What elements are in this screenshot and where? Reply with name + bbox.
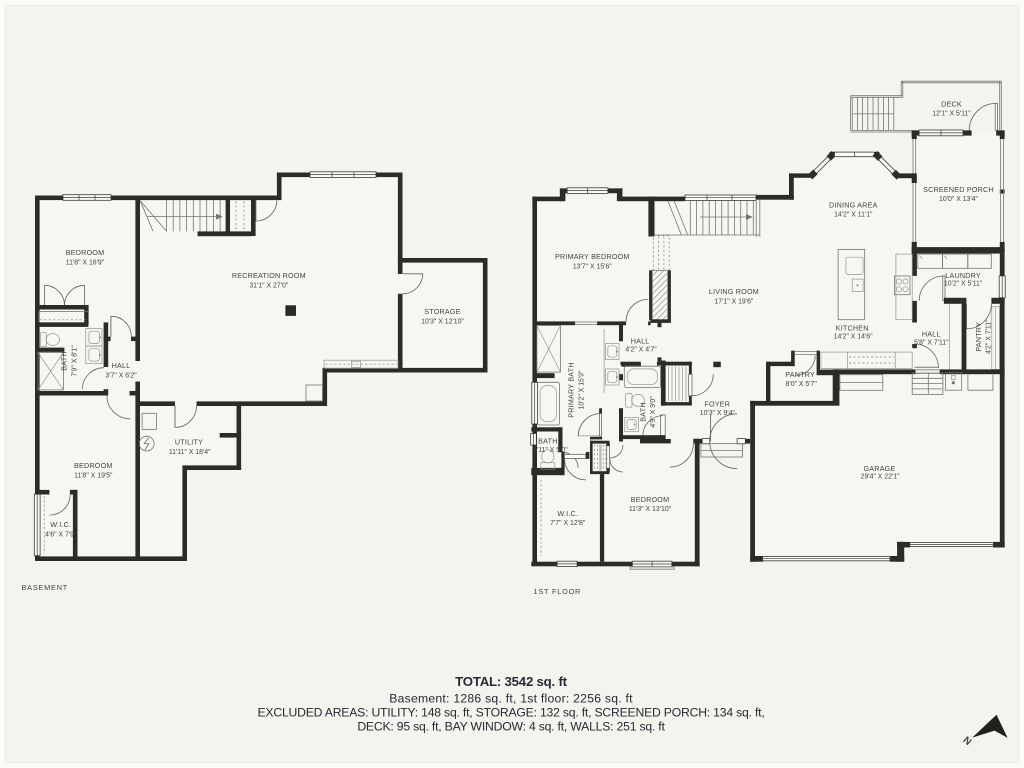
- svg-text:31'1" X 27'0": 31'1" X 27'0": [249, 283, 288, 290]
- svg-text:DECK: 95 sq. ft, BAY WINDOW: 4: DECK: 95 sq. ft, BAY WINDOW: 4 sq. ft, W…: [357, 720, 665, 734]
- svg-text:HALL: HALL: [922, 330, 941, 339]
- svg-text:RECREATION ROOM: RECREATION ROOM: [232, 271, 306, 280]
- svg-text:10'2" X 15'9": 10'2" X 15'9": [579, 370, 586, 409]
- svg-text:BEDROOM: BEDROOM: [631, 495, 670, 504]
- svg-text:SCREENED PORCH: SCREENED PORCH: [923, 185, 994, 194]
- svg-text:FOYER: FOYER: [704, 400, 730, 409]
- svg-text:BEDROOM: BEDROOM: [66, 248, 105, 257]
- svg-text:4'2" X 4'7": 4'2" X 4'7": [625, 347, 657, 354]
- svg-text:W.I.C.: W.I.C.: [557, 509, 578, 518]
- svg-text:10'3" X 12'10": 10'3" X 12'10": [421, 319, 464, 326]
- svg-text:BEDROOM: BEDROOM: [74, 461, 113, 470]
- svg-text:14'2" X 14'6": 14'2" X 14'6": [834, 334, 873, 341]
- svg-text:17'1" X 19'6": 17'1" X 19'6": [714, 299, 753, 306]
- svg-text:KITCHEN: KITCHEN: [836, 324, 869, 333]
- svg-text:11'11" X 18'4": 11'11" X 18'4": [169, 449, 211, 456]
- svg-text:7'7" X 12'8": 7'7" X 12'8": [550, 520, 586, 527]
- svg-text:11'8" X 16'9": 11'8" X 16'9": [66, 260, 105, 267]
- svg-text:EXCLUDED AREAS: UTILITY: 148 s: EXCLUDED AREAS: UTILITY: 148 sq. ft, STO…: [257, 706, 764, 720]
- svg-text:12'1" X 5'11": 12'1" X 5'11": [932, 111, 971, 118]
- svg-text:PANTRY: PANTRY: [974, 322, 983, 352]
- svg-text:14'2" X 11'1": 14'2" X 11'1": [834, 212, 873, 219]
- svg-text:7'9" X 8'1": 7'9" X 8'1": [72, 345, 79, 377]
- svg-text:LIVING ROOM: LIVING ROOM: [709, 287, 759, 296]
- svg-text:11'3" X 13'10": 11'3" X 13'10": [629, 506, 672, 513]
- svg-text:BATH: BATH: [639, 402, 648, 421]
- svg-text:3'7" X 6'2": 3'7" X 6'2": [105, 373, 137, 380]
- svg-text:HALL: HALL: [631, 337, 650, 346]
- svg-text:DECK: DECK: [941, 100, 962, 109]
- svg-text:BASEMENT: BASEMENT: [22, 583, 69, 592]
- svg-text:8'0" X 5'7": 8'0" X 5'7": [786, 381, 818, 388]
- svg-text:10'3" X 9'4": 10'3" X 9'4": [700, 410, 736, 417]
- svg-text:10'2" X 5'11": 10'2" X 5'11": [944, 281, 983, 288]
- svg-text:LAUNDRY: LAUNDRY: [945, 271, 981, 280]
- svg-text:BATH: BATH: [538, 437, 557, 446]
- svg-text:BATH: BATH: [60, 351, 69, 370]
- svg-text:4'2" X 7'11": 4'2" X 7'11": [986, 319, 993, 354]
- svg-text:5'8" X 7'11": 5'8" X 7'11": [914, 340, 949, 347]
- svg-text:Basement: 1286 sq. ft, 1st flo: Basement: 1286 sq. ft, 1st floor: 2256 s…: [389, 692, 633, 706]
- svg-text:PRIMARY BEDROOM: PRIMARY BEDROOM: [555, 252, 630, 261]
- svg-text:4'6" X 7'9": 4'6" X 7'9": [45, 532, 77, 539]
- svg-text:29'4" X 22'1": 29'4" X 22'1": [861, 474, 900, 481]
- svg-text:TOTAL: 3542 sq. ft: TOTAL: 3542 sq. ft: [455, 674, 567, 689]
- svg-text:PRIMARY BATH: PRIMARY BATH: [567, 362, 576, 418]
- svg-text:GARAGE: GARAGE: [864, 464, 896, 473]
- svg-text:10'0" X 13'4": 10'0" X 13'4": [939, 196, 978, 203]
- svg-text:13'7" X 15'6": 13'7" X 15'6": [573, 264, 612, 271]
- svg-text:1ST FLOOR: 1ST FLOOR: [534, 587, 582, 596]
- svg-text:UTILITY: UTILITY: [175, 438, 203, 447]
- svg-text:W.I.C.: W.I.C.: [50, 520, 71, 529]
- svg-text:STORAGE: STORAGE: [424, 307, 460, 316]
- svg-text:3'11" X 5'0": 3'11" X 5'0": [533, 447, 568, 454]
- svg-text:11'8" X 19'5": 11'8" X 19'5": [74, 472, 113, 479]
- svg-text:4'9" X 9'0": 4'9" X 9'0": [650, 396, 657, 428]
- svg-text:PANTRY: PANTRY: [785, 370, 815, 379]
- svg-text:HALL: HALL: [112, 361, 131, 370]
- svg-text:DINING AREA: DINING AREA: [829, 201, 878, 210]
